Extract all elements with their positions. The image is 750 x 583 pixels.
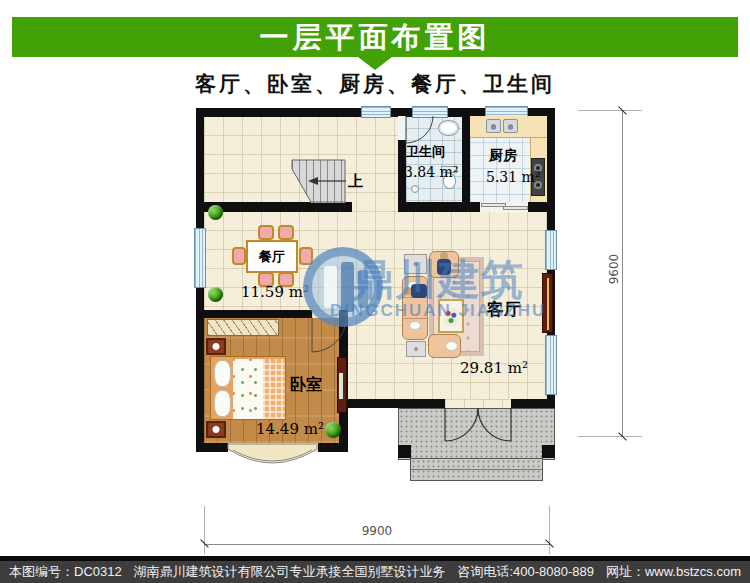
flower-decor [444,308,458,326]
nightstand [206,421,226,438]
footer-bar: 本图编号：DC0312 湖南鼎川建筑设计有限公司专业承接全国别墅设计业务 咨询电… [0,561,750,583]
dimension-extension-line [549,506,550,554]
stairs-up-label: 上 [348,172,363,191]
bay-window-opening [228,443,318,452]
bed [210,356,286,420]
tv-screen [547,278,549,330]
wall [196,310,312,318]
wall [462,108,470,212]
room-list-subtitle: 客厅、卧室、厨房、餐厅、卫生间 [0,70,750,98]
living-room-label: 客厅 [487,298,521,321]
coffee-table [438,299,464,333]
plant-icon [208,287,223,302]
step-line [411,469,542,470]
bathroom-door-opening [398,116,406,140]
bathroom-label: 卫生间 [406,143,445,161]
banner-arrow [358,57,392,70]
company-statement: 湖南鼎川建筑设计有限公司专业承接全国别墅设计业务 [134,563,446,581]
pillow [214,390,231,417]
person-body [411,284,427,298]
entrance-porch [398,408,555,460]
kitchen-sink [503,119,518,133]
hotline: 咨询电话:400-8080-889 [457,563,594,581]
dimension-value-horizontal: 9900 [332,524,422,538]
dimension-line-horizontal [204,544,550,545]
sofa-pillow [409,321,421,330]
floor-drain [411,185,419,193]
side-table [404,254,427,274]
dimension-line-vertical [622,110,623,437]
wall [528,202,555,212]
wall [511,399,555,408]
person-body [437,259,451,275]
tv-screen [339,373,343,399]
pillow [214,360,231,387]
blanket [233,359,263,419]
bedroom-tv-cabinet [337,357,347,413]
plant-icon [208,205,223,220]
sliding-door-panel [503,206,528,210]
sofa [428,334,461,358]
bedroom-door-opening [312,310,339,318]
window [412,106,448,118]
dining-chair [232,247,246,265]
dining-area-label: 11.59 m² [241,283,309,301]
website: 网址：www.bstzcs.com [606,563,741,581]
wall [348,399,445,408]
kitchen-label: 厨房 [489,147,517,165]
person-icon [437,252,451,276]
page-title: 一层平面布置图 [12,17,738,57]
window [194,228,206,288]
window [545,230,557,270]
side-table [406,341,426,357]
entrance-door-opening [445,399,511,408]
dining-room-label: 餐厅 [259,248,285,266]
porch-steps [410,458,543,481]
living-tv-cabinet [542,273,553,333]
dimension-extension-line [578,110,642,111]
dining-chair [258,225,274,240]
floor-plan-page: 一层平面布置图 客厅、卧室、厨房、餐厅、卫生间 上 餐 [0,0,750,583]
dimension-value-vertical: 9600 [607,239,621,299]
bathroom-sink [438,120,459,136]
porch-column [542,445,555,458]
kitchen-area-label: 5.31 m² [486,169,541,185]
window [545,335,557,395]
sofa-pillow [445,341,458,351]
plant-icon [325,422,341,438]
wardrobe [207,319,279,336]
bedroom-area-label: 14.49 m² [256,420,324,438]
dining-chair [299,247,313,265]
window [361,106,391,118]
bed-footboard [263,359,285,419]
living-area-label: 29.81 m² [460,359,528,377]
bedroom-label: 卧室 [290,375,322,396]
nightstand [206,338,226,355]
dining-table: 餐厅 [246,240,298,273]
wall [398,202,480,212]
kitchen-sink [486,119,501,133]
dimension-extension-line [578,436,642,437]
person-icon [404,284,428,298]
drawing-number: 本图编号：DC0312 [9,563,122,581]
porch-column [398,445,411,458]
bathroom-area-label: 3.84 m² [404,164,459,180]
dining-chair [278,225,294,240]
dimension-extension-line [204,506,205,554]
